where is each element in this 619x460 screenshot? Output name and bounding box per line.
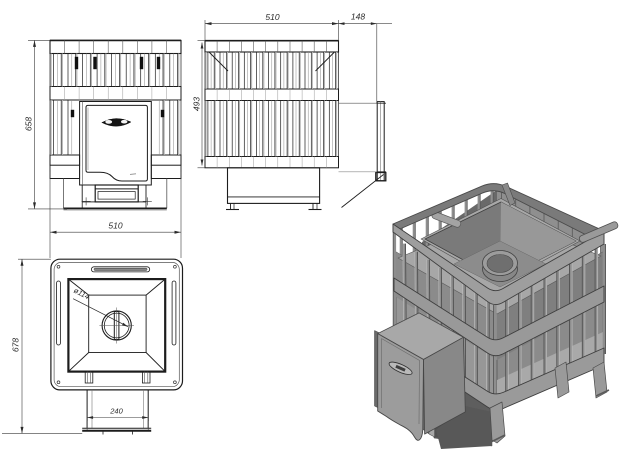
svg-text:510: 510 [265,12,279,22]
svg-text:240: 240 [109,407,123,416]
svg-text:148: 148 [351,12,365,22]
svg-text:510: 510 [108,221,122,231]
svg-text:678: 678 [11,338,21,352]
svg-text:493: 493 [192,97,202,111]
svg-text:658: 658 [24,117,34,131]
